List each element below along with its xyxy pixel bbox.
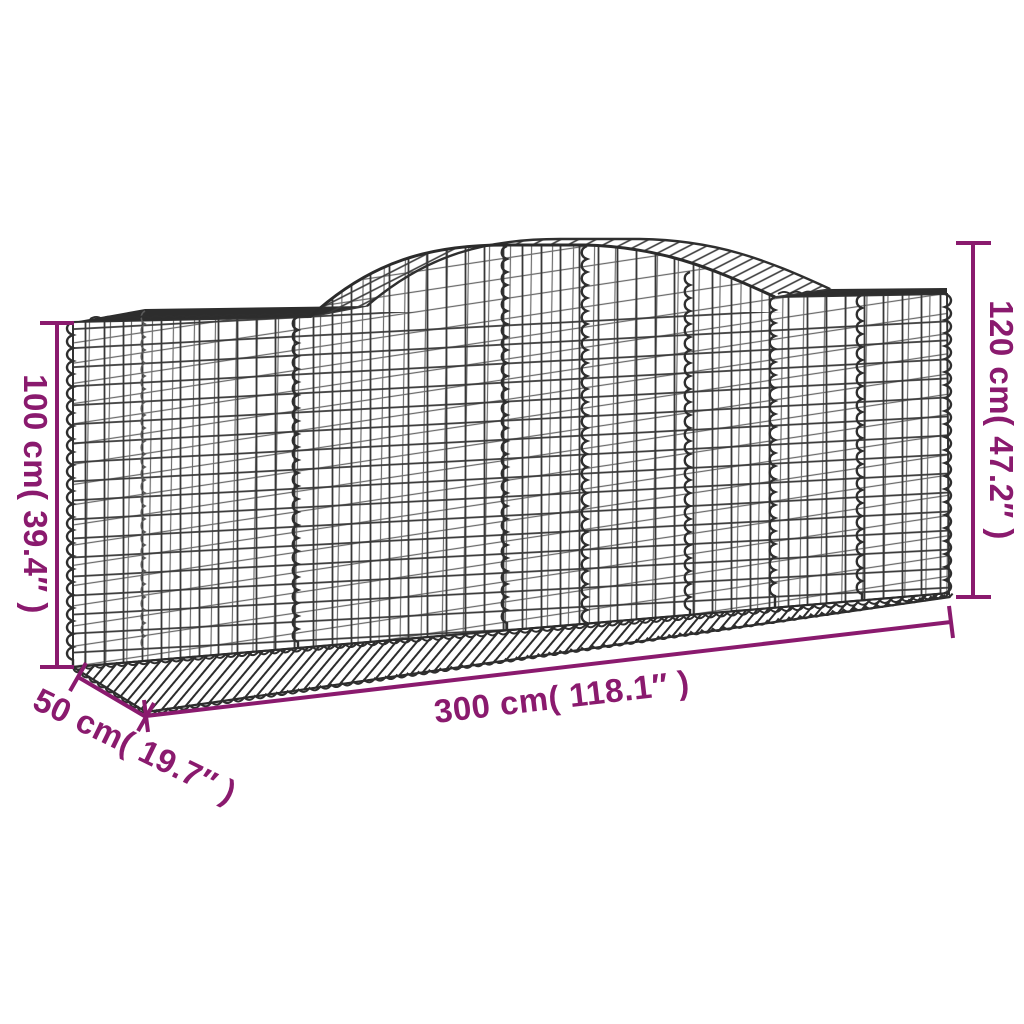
product-dimension-diagram: 100 cm( 39.4″ ) 120 cm( 47.2″ ) 300 cm( … [0, 0, 1024, 1024]
basket-illustration [55, 225, 965, 714]
label-side-height: 100 cm( 39.4″ ) [17, 374, 54, 614]
label-total-height: 120 cm( 47.2″ ) [983, 300, 1020, 540]
gabion-basket-diagram: 100 cm( 39.4″ ) 120 cm( 47.2″ ) 300 cm( … [0, 0, 1024, 1024]
label-length: 300 cm( 118.1″ ) [432, 663, 691, 730]
